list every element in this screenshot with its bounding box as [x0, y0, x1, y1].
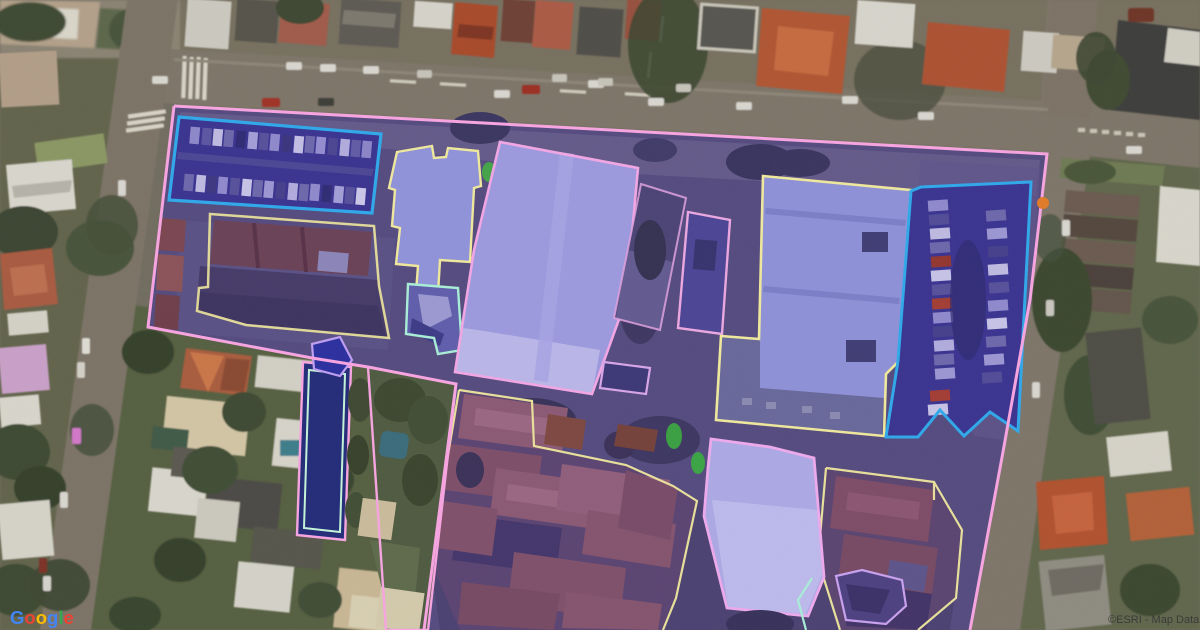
svg-text:©ESRI - Map Data: ©ESRI - Map Data [1108, 614, 1200, 626]
svg-text:Google: Google [10, 607, 74, 628]
